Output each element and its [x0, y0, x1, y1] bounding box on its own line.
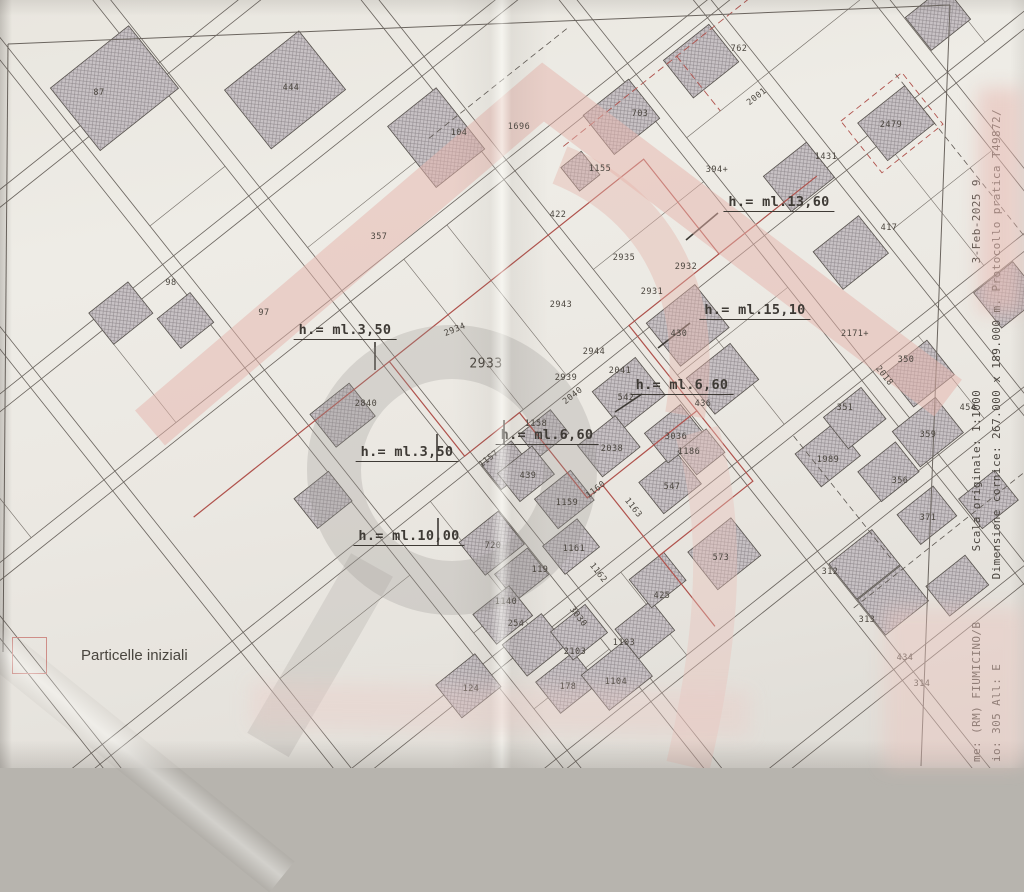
parcel-number-762: 762	[731, 44, 748, 54]
parcel-number-2041: 2041	[609, 366, 631, 376]
parcel-number-2840: 2840	[355, 399, 377, 409]
parcel-number-314: 314	[914, 679, 931, 689]
parcel-number-430: 430	[671, 329, 688, 339]
legend-label: Particelle iniziali	[81, 647, 188, 664]
parcel-number-2479: 2479	[880, 120, 902, 130]
parcel-number-2931: 2931	[641, 287, 663, 297]
parcel-number-357: 357	[371, 232, 388, 242]
parcel-number-2103: 2103	[564, 647, 586, 657]
parcel-number-720: 720	[485, 541, 502, 551]
parcel-number-444: 444	[283, 83, 300, 93]
parcel-number-1431: 1431	[815, 152, 837, 162]
parcel-number-1155: 1155	[589, 164, 611, 174]
parcel-number-312: 312	[822, 567, 839, 577]
parcel-number-254: 254	[508, 619, 525, 629]
parcel-number-104: 104	[451, 128, 468, 138]
height-annotation-6: h.= ml.3,50	[356, 444, 459, 462]
height-annotation-4: h.= ml.6,60	[631, 377, 734, 395]
parcel-number-1159: 1159	[556, 498, 578, 508]
parcel-number-2932: 2932	[675, 262, 697, 272]
parcel-number-1696: 1696	[508, 122, 530, 132]
parcel-number-350: 350	[898, 355, 915, 365]
parcel-number-1186: 1186	[678, 447, 700, 457]
watermark-band	[688, 432, 715, 766]
parcel-number-2944: 2944	[583, 347, 605, 357]
parcel-number-371: 371	[920, 513, 937, 523]
parcel-number-2935: 2935	[613, 253, 635, 263]
parcel-number-2939: 2939	[555, 373, 577, 383]
height-annotation-5: h.= ml.6,60	[496, 427, 599, 445]
parcel-number-2933: 2933	[469, 357, 502, 372]
parcel-number-703: 703	[632, 109, 649, 119]
parcel-number-417: 417	[881, 223, 898, 233]
height-annotation-2: h.= ml.13,60	[723, 194, 834, 212]
parcel-number-573: 573	[713, 553, 730, 563]
photographed-cadastral-map: 87444104169611554223577037622001394+1431…	[0, 0, 1024, 768]
parcel-number-439: 439	[520, 471, 537, 481]
height-annotation-1: h.= ml.3,50	[294, 322, 397, 340]
parcel-number-3036: 3036	[665, 432, 687, 442]
parcel-number-436: 436	[695, 399, 712, 409]
parcel-number-1140: 1140	[495, 597, 517, 607]
parcel-number-1104: 1104	[605, 677, 627, 687]
parcel-number-547: 547	[664, 482, 681, 492]
parcel-number-124: 124	[463, 684, 480, 694]
parcel-number-119: 119	[532, 565, 549, 575]
parcel-number-1989: 1989	[817, 455, 839, 465]
parcel-number-98: 98	[165, 278, 176, 288]
parcel-number-313: 313	[859, 615, 876, 625]
parcel-number-1103: 1103	[613, 638, 635, 648]
parcel-number-1161: 1161	[563, 544, 585, 554]
legend: Particelle iniziali	[12, 637, 188, 674]
parcel-number-178: 178	[560, 682, 577, 692]
parcel-number-351: 351	[837, 403, 854, 413]
legend-initial-parcels-swatch	[12, 637, 47, 674]
parcel-number-2943: 2943	[550, 300, 572, 310]
margin-text-line-2: io: 305 All: E Dimensione cornice: 267.0…	[990, 109, 1003, 762]
parcel-number-87: 87	[93, 88, 104, 98]
parcel-number-359: 359	[920, 430, 937, 440]
parcel-number-425: 425	[654, 591, 671, 601]
parcel-number-2038: 2038	[601, 444, 623, 454]
parcel-number-97: 97	[258, 308, 269, 318]
parcel-number-356: 356	[892, 476, 909, 486]
parcel-number-2171+: 2171+	[841, 329, 869, 339]
height-annotation-3: h.= ml.15,10	[699, 302, 810, 320]
parcel-number-434: 434	[897, 653, 914, 663]
height-annotation-7: h.= ml.10,00	[353, 528, 464, 546]
parcel-number-394+: 394+	[706, 165, 728, 175]
margin-text-line-1: me: (RM) FIUMICINO/B Scala originale: 1:…	[970, 179, 983, 762]
parcel-number-422: 422	[550, 210, 567, 220]
watermark-letter-tail	[268, 565, 372, 745]
